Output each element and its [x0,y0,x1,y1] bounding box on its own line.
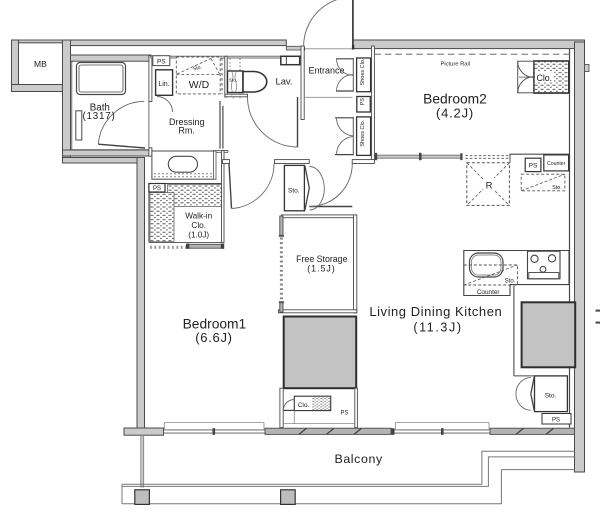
svg-text:Clo.: Clo. [191,221,206,230]
svg-text:PS: PS [360,98,366,106]
svg-text:PS: PS [340,411,348,417]
svg-text:Sto.: Sto. [288,188,300,195]
svg-text:Clo.: Clo. [298,402,310,409]
svg-text:Lav.: Lav. [275,76,292,87]
svg-text:R: R [486,181,493,192]
svg-text:Shoes Clo.: Shoes Clo. [360,119,366,146]
svg-text:Balcony: Balcony [334,452,382,466]
svg-text:MB: MB [34,59,47,69]
svg-text:(6.6J): (6.6J) [195,330,232,345]
svg-text:Bedroom2: Bedroom2 [423,91,487,106]
svg-text:Sto.: Sto. [229,78,237,83]
svg-text:(4.2J): (4.2J) [436,106,474,121]
svg-text:PS: PS [153,186,161,192]
svg-text:Sto.: Sto. [505,279,516,285]
svg-text:Sto.: Sto. [552,185,562,191]
svg-text:Sto.: Sto. [545,393,557,400]
svg-text:Counter: Counter [547,161,566,167]
svg-text:Clo.: Clo. [536,73,552,83]
svg-text:(1317): (1317) [82,111,115,122]
svg-text:(1.0J): (1.0J) [188,231,209,240]
svg-text:Rm.: Rm. [178,125,195,135]
svg-text:Walk-in: Walk-in [185,212,212,221]
svg-text:Picture Rail: Picture Rail [440,61,470,67]
svg-text:(11.3J): (11.3J) [413,321,462,335]
svg-text:(1.5J): (1.5J) [307,263,336,273]
svg-text:W/D: W/D [189,79,210,91]
svg-text:Living Dining Kitchen: Living Dining Kitchen [369,304,502,319]
svg-text:PS: PS [529,163,538,170]
svg-text:PS: PS [552,418,560,424]
svg-text:Lin.: Lin. [158,81,169,88]
svg-text:Counter: Counter [477,289,501,296]
svg-text:Shoes Clo.: Shoes Clo. [360,58,366,85]
svg-text:PS: PS [157,59,166,66]
